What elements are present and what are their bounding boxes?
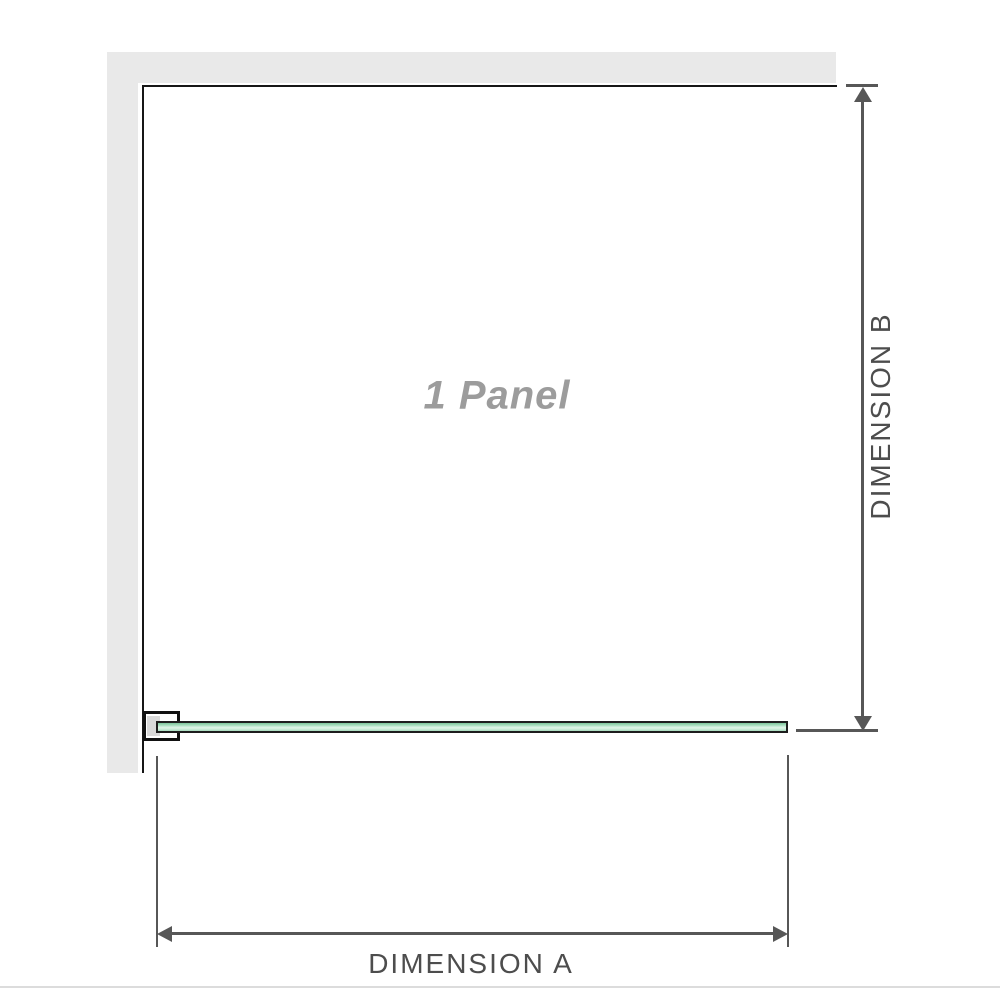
bottom-separator <box>0 986 1000 988</box>
glass-panel <box>156 721 788 733</box>
dimension-b-label: DIMENSION B <box>865 312 897 519</box>
dimension-b-cap-bottom <box>796 729 878 732</box>
dimension-a-label: DIMENSION A <box>368 948 574 980</box>
arrow-right-icon <box>773 926 788 942</box>
dimension-a-extension-left <box>156 756 158 947</box>
panel-count-label: 1 Panel <box>423 374 570 419</box>
panel-dimension-diagram: 1 Panel DIMENSION B DIMENSION A <box>0 0 1000 1000</box>
panel-edge-top <box>142 85 837 87</box>
wall-left <box>107 52 138 773</box>
dimension-a-extension-right <box>787 755 789 947</box>
dimension-a-line <box>170 932 775 935</box>
wall-top <box>107 52 836 83</box>
dimension-b-line <box>861 100 864 718</box>
panel-edge-left <box>142 85 144 773</box>
